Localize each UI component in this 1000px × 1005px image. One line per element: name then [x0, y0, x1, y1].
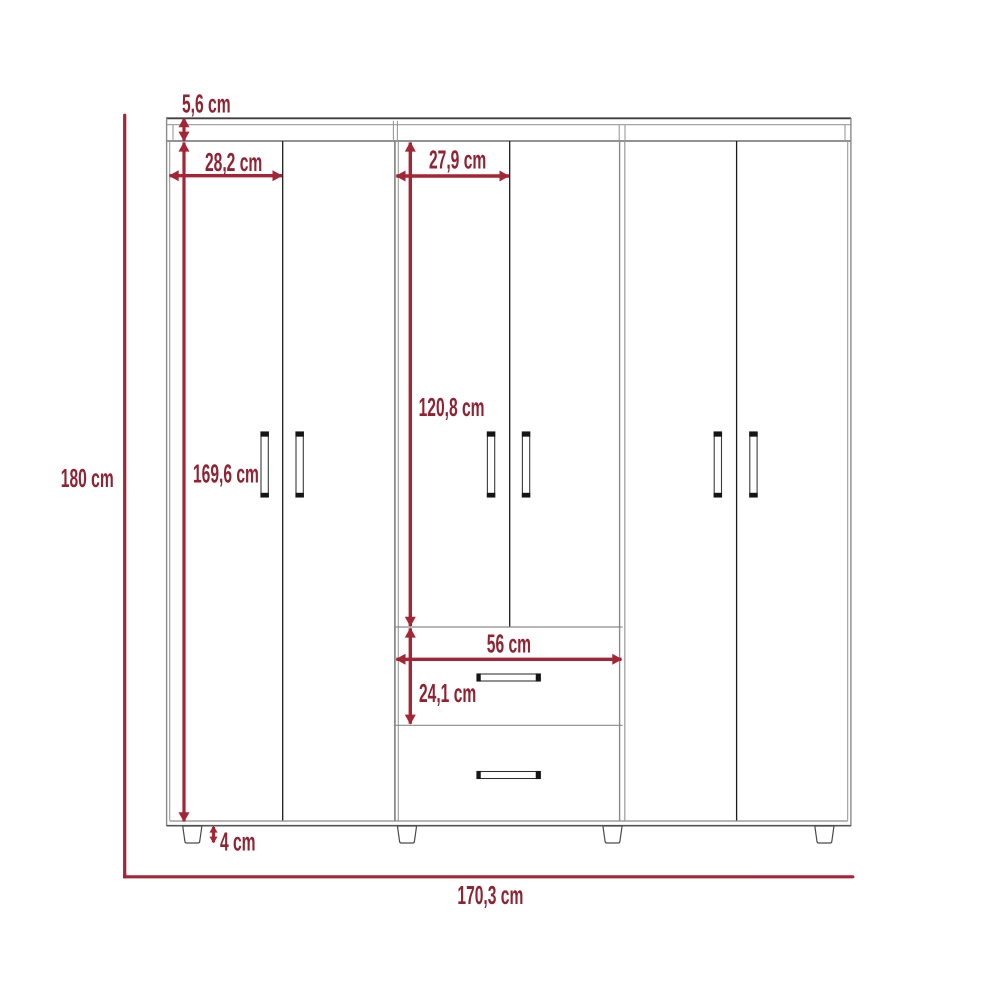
- svg-text:170,3 cm: 170,3 cm: [457, 881, 523, 910]
- svg-text:120,8 cm: 120,8 cm: [419, 393, 485, 422]
- svg-text:180 cm: 180 cm: [61, 464, 114, 493]
- svg-text:56 cm: 56 cm: [487, 630, 531, 659]
- svg-text:4 cm: 4 cm: [220, 827, 256, 856]
- svg-text:27,9 cm: 27,9 cm: [429, 145, 486, 174]
- svg-text:5,6 cm: 5,6 cm: [182, 89, 231, 118]
- svg-text:28,2 cm: 28,2 cm: [205, 148, 262, 177]
- svg-text:24,1 cm: 24,1 cm: [419, 679, 476, 708]
- svg-text:169,6 cm: 169,6 cm: [193, 460, 259, 489]
